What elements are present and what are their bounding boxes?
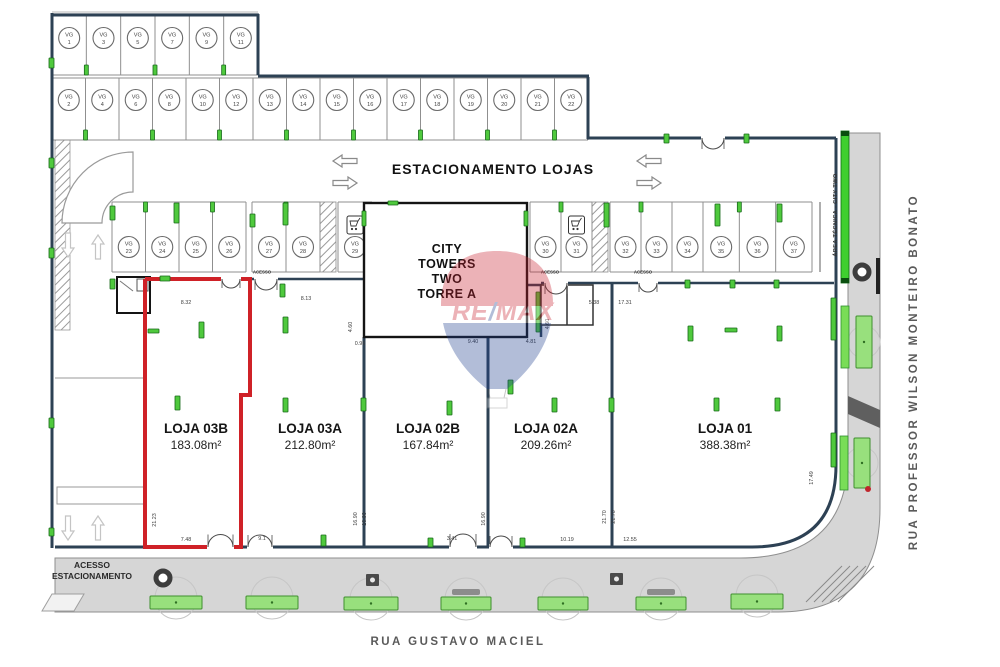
parking-stall: VG21	[527, 90, 548, 111]
parking-stall: VG4	[92, 90, 113, 111]
door-marker	[388, 201, 398, 205]
area-tecnica-label: ÁREA TÉCNICA - CITY TWO	[831, 173, 839, 257]
door-marker	[283, 317, 288, 333]
street-name-bottom: RUA GUSTAVO MACIEL	[370, 636, 545, 648]
door-marker	[609, 398, 614, 412]
tower-line-1: CITY	[432, 242, 463, 256]
door-marker	[84, 65, 88, 75]
door-marker	[775, 398, 780, 411]
balloon-basket	[487, 398, 507, 408]
parking-stall: VG9	[196, 28, 217, 49]
door-marker	[199, 322, 204, 338]
door-marker	[559, 202, 563, 212]
tree-trunk-icon	[855, 265, 869, 279]
parking-stall: VG28	[293, 237, 314, 258]
door-marker	[110, 206, 115, 220]
door-marker	[524, 211, 528, 226]
door-marker	[688, 326, 693, 341]
dimension-label: 21.70	[602, 510, 608, 524]
dimension-label: 12.55	[623, 537, 637, 543]
svg-text:VG: VG	[192, 242, 200, 248]
dimension-label: 16.90	[362, 512, 368, 526]
svg-text:16: 16	[367, 102, 373, 108]
parking-stall: VG6	[125, 90, 146, 111]
svg-text:5: 5	[136, 40, 139, 46]
door-marker	[725, 328, 737, 332]
ramp-arrow-icon	[92, 516, 104, 540]
area-tecnica-strip	[840, 131, 849, 490]
acesso-label-3: ACESSO	[634, 270, 653, 275]
svg-text:VG: VG	[225, 242, 233, 248]
balloon-bottom	[443, 323, 551, 389]
dimension-label: 10.19	[560, 537, 574, 543]
svg-text:VG: VG	[567, 95, 575, 101]
door-marker	[639, 202, 643, 212]
door-marker	[744, 134, 749, 143]
tree-trunk-icon	[156, 571, 170, 585]
svg-text:6: 6	[134, 102, 137, 108]
dimension-label: 0.96	[355, 341, 366, 347]
parking-stall: VG18	[427, 90, 448, 111]
svg-text:34: 34	[684, 249, 690, 255]
svg-text:13: 13	[267, 102, 273, 108]
svg-text:VG: VG	[572, 242, 580, 248]
svg-text:VG: VG	[753, 242, 761, 248]
svg-text:7: 7	[171, 40, 174, 46]
floor-plan-page: VG1VG3VG5VG7VG9VG11VG2VG4VG6VG8VG10VG12V…	[0, 0, 1000, 667]
parking-stall: VG32	[615, 237, 636, 258]
parking-stall: VG5	[127, 28, 148, 49]
parking-stall: VG3	[93, 28, 114, 49]
door-marker	[664, 134, 669, 143]
store-area: 183.08m²	[171, 438, 222, 452]
svg-text:3: 3	[102, 40, 105, 46]
door-marker	[49, 248, 54, 258]
parking-row: VG30VG31	[530, 202, 592, 272]
svg-text:VG: VG	[433, 95, 441, 101]
svg-text:VG: VG	[199, 95, 207, 101]
door-marker	[552, 398, 557, 412]
store-label-loja-01: LOJA 01 388.38m²	[698, 421, 753, 452]
parking-stall: VG20	[494, 90, 515, 111]
wall-right-curve	[752, 138, 836, 547]
svg-text:11: 11	[238, 40, 244, 46]
svg-text:32: 32	[622, 249, 628, 255]
door-swing-icon	[489, 536, 513, 550]
door-swing-icon	[701, 135, 725, 149]
parking-stall: VG30	[535, 237, 556, 258]
svg-text:VG: VG	[366, 95, 374, 101]
svg-text:VG: VG	[132, 95, 140, 101]
door-swing-icon	[638, 280, 658, 292]
curb-mark	[876, 258, 880, 294]
door-marker	[222, 65, 226, 75]
svg-text:VG: VG	[534, 95, 542, 101]
parking-row: VG2VG4VG6VG8VG10VG12VG13VG14VG15VG16VG17…	[52, 78, 588, 140]
parking-stall: VG36	[747, 237, 768, 258]
svg-text:VG: VG	[158, 242, 166, 248]
svg-text:VG: VG	[165, 95, 173, 101]
svg-text:36: 36	[754, 249, 760, 255]
svg-text:VG: VG	[125, 242, 133, 248]
dimension-label: 21.70	[611, 510, 617, 524]
door-marker	[49, 418, 54, 428]
svg-text:VG: VG	[202, 33, 210, 39]
parking-stall: VG22	[561, 90, 582, 111]
parking-stall: VG16	[360, 90, 381, 111]
acesso-label-1: ACESSO	[253, 270, 272, 275]
svg-text:26: 26	[226, 249, 232, 255]
parking-stall: VG31	[566, 237, 587, 258]
balloon-ropes	[488, 389, 506, 398]
parking-stall: VG8	[159, 90, 180, 111]
parking-stall: VG35	[711, 237, 732, 258]
parking-row: VG32VG33VG34	[610, 202, 703, 272]
parking-stall: VG15	[326, 90, 347, 111]
store-name: LOJA 02B	[396, 421, 460, 436]
dimension-label: 17.49	[809, 471, 815, 485]
svg-text:VG: VG	[717, 242, 725, 248]
svg-text:4: 4	[101, 102, 104, 108]
store-area: 167.84m²	[403, 438, 454, 452]
svg-text:VG: VG	[299, 95, 307, 101]
svg-text:14: 14	[300, 102, 306, 108]
store-label-loja-03b: LOJA 03B 183.08m²	[164, 421, 228, 452]
door-marker	[361, 398, 366, 411]
door-marker	[151, 130, 155, 140]
dimension-label: 9.1	[258, 536, 266, 542]
store-name: LOJA 02A	[514, 421, 578, 436]
door-marker	[774, 280, 779, 288]
svg-text:VG: VG	[65, 33, 73, 39]
svg-text:33: 33	[653, 249, 659, 255]
store-label-loja-03a: LOJA 03A 212.80m²	[278, 421, 342, 452]
parking-stall: VG17	[393, 90, 414, 111]
door-marker	[352, 130, 356, 140]
svg-text:VG: VG	[99, 33, 107, 39]
store-name: LOJA 03A	[278, 421, 342, 436]
door-marker	[148, 329, 159, 333]
dimension-label: 5.38	[589, 300, 600, 306]
svg-text:10: 10	[200, 102, 206, 108]
traffic-arrow-icon	[333, 155, 357, 167]
svg-text:VG: VG	[134, 33, 142, 39]
highlighted-unit-outline	[145, 279, 250, 547]
dimension-label: 17.31	[618, 300, 632, 306]
door-marker	[520, 538, 525, 547]
parking-area-title: ESTACIONAMENTO LOJAS	[392, 161, 594, 177]
parking-stall: VG34	[677, 237, 698, 258]
parking-stall: VG13	[259, 90, 280, 111]
door-marker	[831, 298, 836, 340]
store-name: LOJA 01	[698, 421, 753, 436]
door-marker	[49, 528, 54, 536]
door-marker	[144, 202, 148, 212]
parking-stall: VG1	[59, 28, 80, 49]
remax-wordmark: RE/MAX	[452, 298, 555, 326]
svg-text:28: 28	[300, 249, 306, 255]
store-area: 388.38m²	[700, 438, 751, 452]
dimension-label: 21.23	[152, 513, 158, 527]
door-marker	[283, 398, 288, 412]
door-marker	[211, 202, 215, 212]
svg-text:35: 35	[718, 249, 724, 255]
dimension-label: 16.90	[353, 512, 359, 526]
hatched-stall-left	[320, 202, 336, 272]
parking-stall: VG29	[345, 237, 366, 258]
svg-text:12: 12	[233, 102, 239, 108]
parking-stall: VG23	[118, 237, 139, 258]
parking-stall: VG12	[226, 90, 247, 111]
svg-text:VG: VG	[266, 95, 274, 101]
store-area: 209.26m²	[521, 438, 572, 452]
door-marker	[730, 280, 735, 288]
door-marker	[486, 130, 490, 140]
parking-stall: VG37	[783, 237, 804, 258]
svg-text:VG: VG	[65, 95, 73, 101]
dimension-label: 16.90	[481, 512, 487, 526]
parking-stall: VG27	[259, 237, 280, 258]
door-marker	[553, 130, 557, 140]
store-area: 212.80m²	[285, 438, 336, 452]
svg-text:22: 22	[568, 102, 574, 108]
svg-text:VG: VG	[400, 95, 408, 101]
traffic-arrow-icon	[637, 155, 661, 167]
svg-text:VG: VG	[652, 242, 660, 248]
svg-text:VG: VG	[467, 95, 475, 101]
svg-text:VG: VG	[500, 95, 508, 101]
parking-stall: VG14	[293, 90, 314, 111]
dimension-label: 3.41	[447, 536, 458, 542]
door-marker	[110, 279, 115, 289]
bench	[452, 589, 480, 595]
door-marker	[447, 401, 452, 415]
door-marker	[685, 280, 690, 288]
door-marker	[428, 538, 433, 547]
svg-text:30: 30	[542, 249, 548, 255]
traffic-arrow-icon	[333, 177, 357, 189]
door-marker	[49, 158, 54, 168]
svg-text:27: 27	[266, 249, 272, 255]
svg-text:VG: VG	[232, 95, 240, 101]
svg-text:25: 25	[193, 249, 199, 255]
door-marker	[737, 202, 741, 212]
floor-plan-image: VG1VG3VG5VG7VG9VG11VG2VG4VG6VG8VG10VG12V…	[0, 0, 1000, 667]
store-label-loja-02a: LOJA 02A 209.26m²	[514, 421, 578, 452]
dimension-label: 7.48	[181, 537, 192, 543]
svg-text:VG: VG	[541, 242, 549, 248]
svg-text:15: 15	[334, 102, 340, 108]
door-marker	[321, 535, 326, 546]
svg-text:VG: VG	[237, 33, 245, 39]
corridor-lines	[55, 378, 145, 504]
direction-arrows	[62, 155, 661, 540]
entrance-label-line2: ESTACIONAMENTO	[52, 571, 132, 581]
store-label-loja-02b: LOJA 02B 167.84m²	[396, 421, 460, 452]
svg-text:29: 29	[352, 249, 358, 255]
cart-icon	[569, 216, 585, 234]
store-name: LOJA 03B	[164, 421, 228, 436]
parking-stall: VG10	[192, 90, 213, 111]
svg-text:9: 9	[205, 40, 208, 46]
ramp-arrow-icon	[92, 235, 104, 259]
door-marker	[285, 130, 289, 140]
svg-text:23: 23	[126, 249, 132, 255]
svg-text:VG: VG	[790, 242, 798, 248]
door-marker	[250, 214, 255, 227]
marker-dot	[865, 486, 871, 492]
door-marker	[218, 130, 222, 140]
dimension-label: 4.60	[348, 322, 354, 333]
door-marker	[777, 326, 782, 341]
ramp-arrow-icon	[62, 516, 74, 540]
parking-stall: VG2	[58, 90, 79, 111]
door-marker	[174, 203, 179, 223]
door-marker	[153, 65, 157, 75]
svg-text:37: 37	[791, 249, 797, 255]
door-marker	[280, 284, 285, 297]
door-marker	[84, 130, 88, 140]
svg-text:21: 21	[535, 102, 541, 108]
door-marker	[715, 204, 720, 226]
parking-stall: VG25	[185, 237, 206, 258]
street-name-right: RUA PROFESSOR WILSON MONTEIRO BONATO	[908, 194, 920, 550]
svg-text:31: 31	[573, 249, 579, 255]
svg-text:24: 24	[159, 249, 165, 255]
parking-stall: VG7	[162, 28, 183, 49]
door-marker	[604, 203, 609, 227]
svg-text:VG: VG	[351, 242, 359, 248]
svg-text:VG: VG	[98, 95, 106, 101]
parking-stall: VG11	[230, 28, 251, 49]
door-marker	[49, 58, 54, 68]
svg-text:20: 20	[501, 102, 507, 108]
svg-text:VG: VG	[621, 242, 629, 248]
entrance-label-line1: ACESSO	[74, 560, 110, 570]
parking-stall: VG24	[152, 237, 173, 258]
parking-stall: VG19	[460, 90, 481, 111]
door-swing-icon	[221, 276, 241, 288]
svg-text:VG: VG	[299, 242, 307, 248]
traffic-arrow-icon	[637, 177, 661, 189]
door-marker	[362, 211, 366, 226]
svg-text:VG: VG	[683, 242, 691, 248]
door-marker	[831, 433, 836, 467]
svg-text:18: 18	[434, 102, 440, 108]
svg-text:17: 17	[401, 102, 407, 108]
parking-stall: VG26	[219, 237, 240, 258]
svg-text:1: 1	[68, 40, 71, 46]
door-marker	[777, 204, 782, 222]
dimension-label: 8.13	[301, 296, 312, 302]
cart-icon	[347, 216, 363, 234]
svg-text:VG: VG	[265, 242, 273, 248]
door-marker	[714, 398, 719, 411]
door-marker	[160, 276, 170, 281]
svg-text:2: 2	[67, 102, 70, 108]
svg-text:8: 8	[168, 102, 171, 108]
door-swing-icon	[254, 276, 278, 290]
remax-watermark: RE/MAX	[441, 251, 555, 408]
door-marker	[175, 396, 180, 410]
dimension-label: 8.32	[181, 300, 192, 306]
parking-stall: VG33	[646, 237, 667, 258]
door-marker	[419, 130, 423, 140]
svg-text:VG: VG	[168, 33, 176, 39]
bench	[647, 589, 675, 595]
door-marker	[283, 203, 288, 225]
svg-text:VG: VG	[333, 95, 341, 101]
ramp-curve	[62, 152, 133, 223]
svg-text:19: 19	[468, 102, 474, 108]
door-swing-icon	[207, 535, 234, 551]
